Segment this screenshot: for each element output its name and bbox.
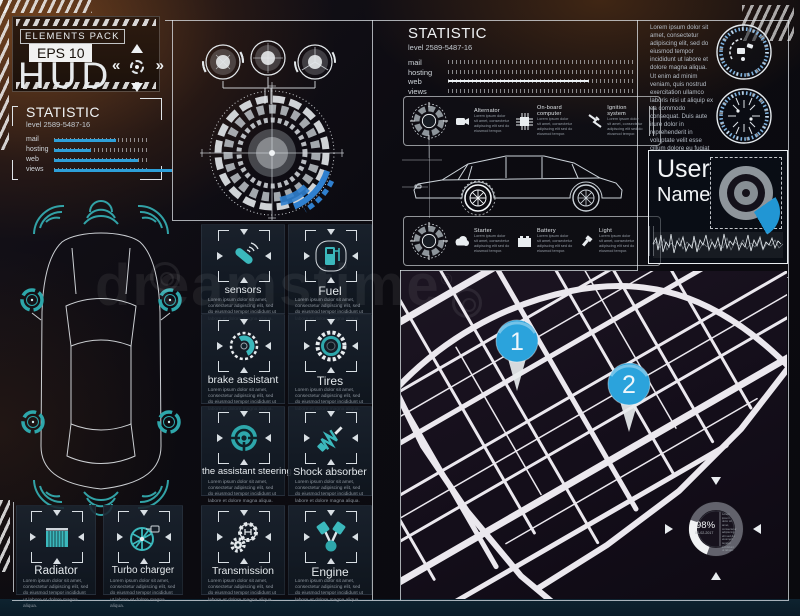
engine-pistons-icon	[314, 520, 348, 554]
lorem-paragraph: Lorem ipsum dolor sit amet, consectetur …	[650, 24, 714, 150]
sensor-icon	[227, 239, 261, 273]
car-top-view	[12, 208, 190, 508]
tile-engine: Engine Lorem ipsum dolor sit amet, conse…	[288, 505, 372, 595]
statistic-level: level 2589-5487-16	[26, 120, 90, 129]
strip-item: Battery Lorem ipsum dolor sit amet, cons…	[516, 228, 573, 254]
gauge-desc: Lorem ipsum dolor sit amet, consectetur …	[722, 513, 735, 553]
fuel-pump-icon	[314, 239, 348, 273]
dial-gauge-bottom	[714, 86, 774, 146]
header-stripes-top	[16, 19, 156, 26]
statistic-panel-left: STATISTIC level 2589-5487-16 mail hostin…	[12, 98, 162, 180]
alternator-icon	[454, 113, 470, 129]
progress-bar	[54, 159, 138, 162]
hazard-stripes-top-left	[0, 0, 92, 13]
stat-row: mail	[26, 136, 150, 145]
target-dial-icon	[410, 222, 448, 260]
rear-wheel	[573, 185, 599, 211]
light-icon	[579, 233, 595, 249]
tile-shock-absorber: Shock absorber Lorem ipsum dolor sit ame…	[288, 406, 372, 496]
gauge-date: 01-02-2017	[695, 531, 713, 535]
stat-row: hosting	[408, 68, 636, 77]
statistic-panel-right: STATISTIC level 2589-5487-16 mail hostin…	[405, 25, 637, 95]
speaker-frame	[710, 157, 782, 229]
tile-assistant-steering: the assistant steering Lorem ipsum dolor…	[201, 406, 285, 496]
pin-2-label: 2	[622, 371, 636, 399]
user-name-line2: Name	[657, 184, 710, 207]
tile-turbo-charger: Turbo charger Lorem ipsum dolor sit amet…	[103, 505, 183, 595]
component-strip-2: Starter Lorem ipsum dolor sit amet, cons…	[403, 216, 661, 266]
gauge-arrow-left	[665, 524, 673, 534]
tire-icon	[314, 329, 348, 363]
mid-panel-bottom	[172, 220, 372, 221]
user-name-line1: User	[657, 155, 710, 184]
tile-radiator: Radiator Lorem ipsum dolor sit amet, con…	[16, 505, 96, 595]
gauge-arrow-right	[753, 524, 761, 534]
hazard-stripes-bottom-left	[0, 500, 10, 572]
gauge-arrow-top	[711, 477, 721, 485]
hud-title: HUD	[18, 55, 113, 97]
watermark-spiral	[150, 262, 180, 292]
stat-row: views	[408, 87, 636, 96]
header-logo-block: ELEMENTS PACK EPS 10 HUD « »	[12, 16, 160, 92]
ignition-system-icon	[587, 113, 603, 129]
hazard-stripes-left-edge	[0, 0, 9, 150]
strip-item: Starter Lorem ipsum dolor sit amet, cons…	[454, 228, 510, 254]
tile-tires: Tires Lorem ipsum dolor sit amet, consec…	[288, 314, 372, 404]
progress-bar	[54, 149, 91, 152]
stat-row: mail	[408, 58, 636, 67]
speaker-blue-wedge	[728, 186, 780, 238]
watermark-spiral	[452, 288, 482, 318]
hud-circle-panel	[172, 20, 372, 220]
divider-mid-right	[372, 20, 373, 600]
stat-row: web	[408, 77, 636, 86]
progress-bar	[54, 139, 116, 142]
strip-item: On-board computer Lorem ipsum dolor sit …	[516, 105, 581, 137]
tile-transmission: Transmission Lorem ipsum dolor sit amet,…	[201, 505, 285, 595]
wheel-gauges	[22, 290, 180, 432]
onboard-computer-icon	[516, 113, 533, 130]
gears-icon	[227, 520, 261, 554]
statistic-level: level 2589-5487-16	[408, 43, 472, 52]
cross-arrows-icon: « »	[114, 44, 162, 92]
component-strip-1: Alternator Lorem ipsum dolor sit amet, c…	[403, 96, 661, 146]
stat-row: views	[26, 166, 150, 175]
tile-sensors: sensors Lorem ipsum dolor sit amet, cons…	[201, 224, 285, 314]
frame-right	[788, 20, 789, 600]
radiator-icon	[40, 520, 74, 554]
gauge-small-2	[251, 41, 285, 75]
progress-gauge-98: 98% 01-02-2017 Lorem ipsum dolor sit ame…	[687, 500, 745, 558]
brake-disc-icon	[227, 329, 261, 363]
battery-icon	[516, 233, 533, 250]
turbo-charger-icon	[127, 520, 161, 554]
stat-row: hosting	[26, 146, 150, 155]
steering-wheel-icon	[227, 421, 261, 455]
strip-item: Ignition system Lorem ipsum dolor sit am…	[587, 105, 643, 137]
strip-item: Alternator Lorem ipsum dolor sit amet, c…	[454, 108, 510, 134]
strip-item: Light Lorem ipsum dolor sit amet, consec…	[579, 228, 635, 254]
front-wheel-highlight	[461, 181, 495, 215]
voice-waveform	[653, 232, 783, 258]
elements-pack-label: ELEMENTS PACK	[20, 29, 125, 44]
car-body-outline	[32, 233, 170, 489]
tile-brake-assistant: brake assistant Lorem ipsum dolor sit am…	[201, 314, 285, 404]
dial-gauge-top	[714, 22, 774, 82]
statistic-title: STATISTIC	[408, 25, 487, 42]
pin-1-label: 1	[510, 328, 524, 356]
starter-icon	[454, 233, 470, 249]
hud-elements-pack-poster: ELEMENTS PACK EPS 10 HUD « » STATISTIC l…	[0, 0, 800, 616]
gauge-value: 98%	[696, 520, 715, 531]
shock-absorber-icon	[314, 421, 348, 455]
tile-fuel: Fuel Lorem ipsum dolor sit amet, consect…	[288, 224, 372, 314]
car-side-view	[402, 140, 642, 218]
target-dial-icon	[410, 102, 448, 140]
stat-row: web	[26, 156, 150, 165]
gauge-arrow-bottom	[711, 572, 721, 580]
statistic-title: STATISTIC	[26, 104, 100, 120]
sensor-arcs	[34, 201, 168, 515]
progress-bar	[54, 169, 172, 172]
bottom-left-tick	[13, 502, 14, 592]
user-name-panel: User Name	[648, 150, 788, 264]
